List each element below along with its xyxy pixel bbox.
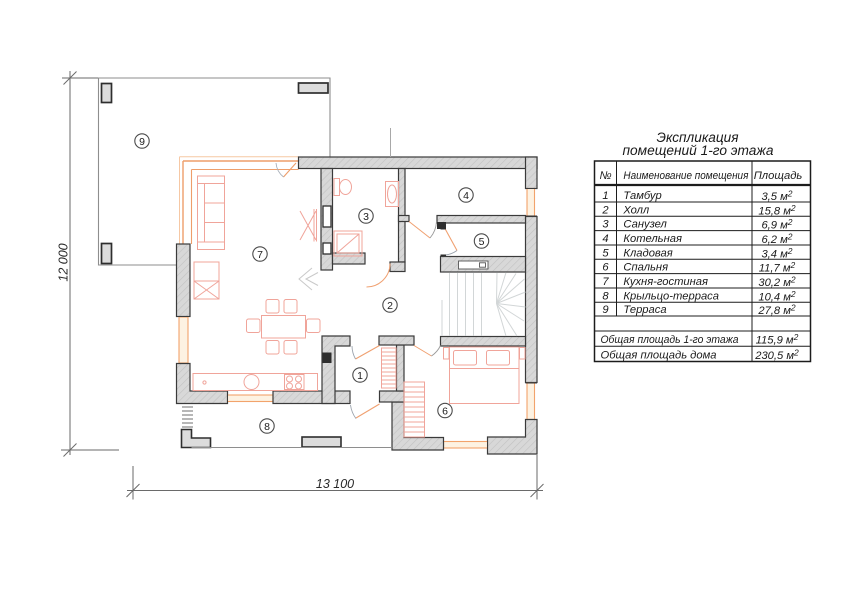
svg-text:5: 5: [479, 236, 485, 248]
svg-text:1: 1: [357, 370, 363, 382]
svg-text:11,7 м2: 11,7 м2: [759, 260, 796, 275]
svg-text:6,2 м2: 6,2 м2: [761, 232, 792, 247]
svg-text:6: 6: [442, 405, 448, 417]
svg-text:8: 8: [602, 290, 609, 302]
svg-text:Наименование помещения: Наименование помещения: [623, 170, 748, 182]
svg-text:115,9 м2: 115,9 м2: [756, 332, 799, 347]
svg-text:3,5 м2: 3,5 м2: [761, 189, 792, 204]
svg-text:7: 7: [257, 249, 263, 261]
svg-text:2: 2: [601, 204, 609, 216]
svg-text:Крыльцо-терраса: Крыльцо-терраса: [623, 290, 719, 302]
svg-text:1: 1: [602, 190, 608, 202]
svg-text:Кухня-гостиная: Кухня-гостиная: [623, 276, 708, 288]
svg-text:3: 3: [602, 219, 609, 231]
svg-text:Площадь: Площадь: [754, 170, 803, 182]
svg-text:№: №: [599, 170, 611, 182]
svg-text:Общая площадь 1-го этажа: Общая площадь 1-го этажа: [601, 334, 739, 346]
svg-text:4: 4: [463, 190, 469, 202]
svg-text:5: 5: [602, 247, 609, 259]
svg-text:230,5 м2: 230,5 м2: [754, 347, 799, 362]
svg-text:Терраса: Терраса: [623, 304, 666, 316]
svg-text:30,2 м2: 30,2 м2: [758, 275, 796, 290]
svg-text:6,9 м2: 6,9 м2: [761, 217, 792, 232]
svg-text:9: 9: [602, 304, 608, 316]
svg-text:4: 4: [602, 233, 608, 245]
svg-text:3,4 м2: 3,4 м2: [761, 246, 792, 261]
svg-text:6: 6: [602, 262, 609, 274]
svg-text:3: 3: [363, 211, 369, 223]
svg-text:27,8 м2: 27,8 м2: [757, 303, 796, 318]
svg-text:Санузел: Санузел: [623, 219, 667, 231]
svg-text:8: 8: [264, 421, 270, 433]
svg-text:12 000: 12 000: [57, 243, 71, 281]
svg-text:13 100: 13 100: [316, 477, 354, 491]
svg-text:Кладовая: Кладовая: [623, 247, 672, 259]
svg-text:Спальня: Спальня: [623, 262, 668, 274]
svg-text:10,4 м2: 10,4 м2: [758, 289, 796, 304]
svg-text:15,8 м2: 15,8 м2: [758, 203, 796, 218]
svg-text:Тамбур: Тамбур: [623, 190, 661, 202]
svg-text:7: 7: [602, 276, 609, 288]
svg-text:9: 9: [139, 136, 145, 148]
svg-text:Котельная: Котельная: [623, 233, 682, 245]
svg-text:Холл: Холл: [622, 204, 650, 216]
svg-text:помещений 1-го этажа: помещений 1-го этажа: [623, 143, 774, 159]
svg-text:2: 2: [387, 300, 393, 312]
svg-text:Общая площадь дома: Общая площадь дома: [601, 349, 717, 361]
